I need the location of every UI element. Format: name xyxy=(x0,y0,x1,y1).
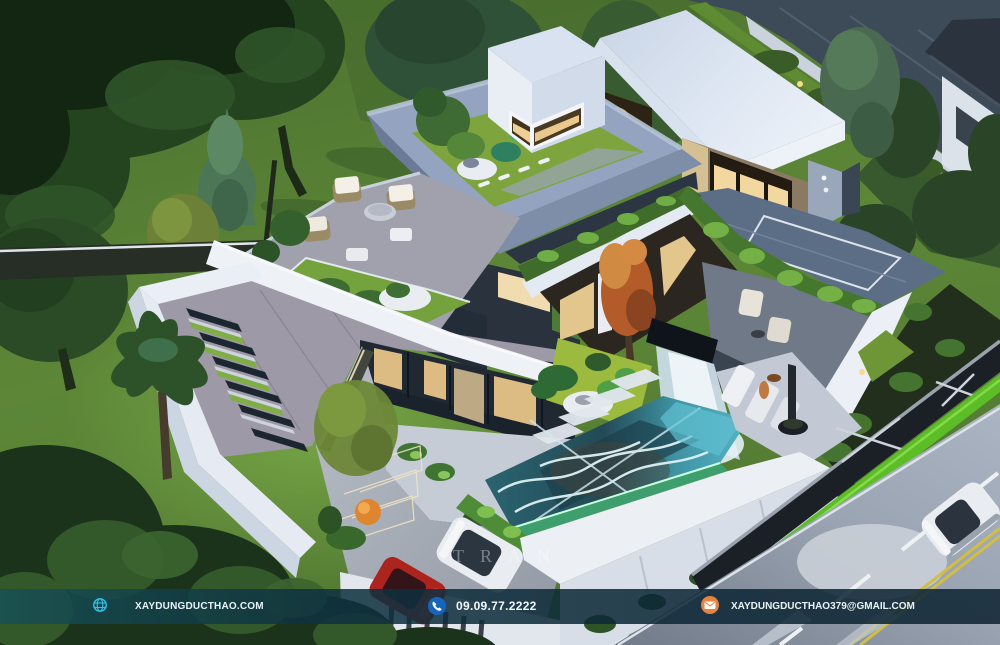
svg-text:09.09.77.2222: 09.09.77.2222 xyxy=(456,599,537,613)
svg-text:XAYDUNGDUCTHAO379@GMAIL.COM: XAYDUNGDUCTHAO379@GMAIL.COM xyxy=(731,601,915,612)
svg-text:XAYDUNGDUCTHAO.COM: XAYDUNGDUCTHAO.COM xyxy=(135,601,264,612)
svg-text:TRAN: TRAN xyxy=(453,546,566,566)
